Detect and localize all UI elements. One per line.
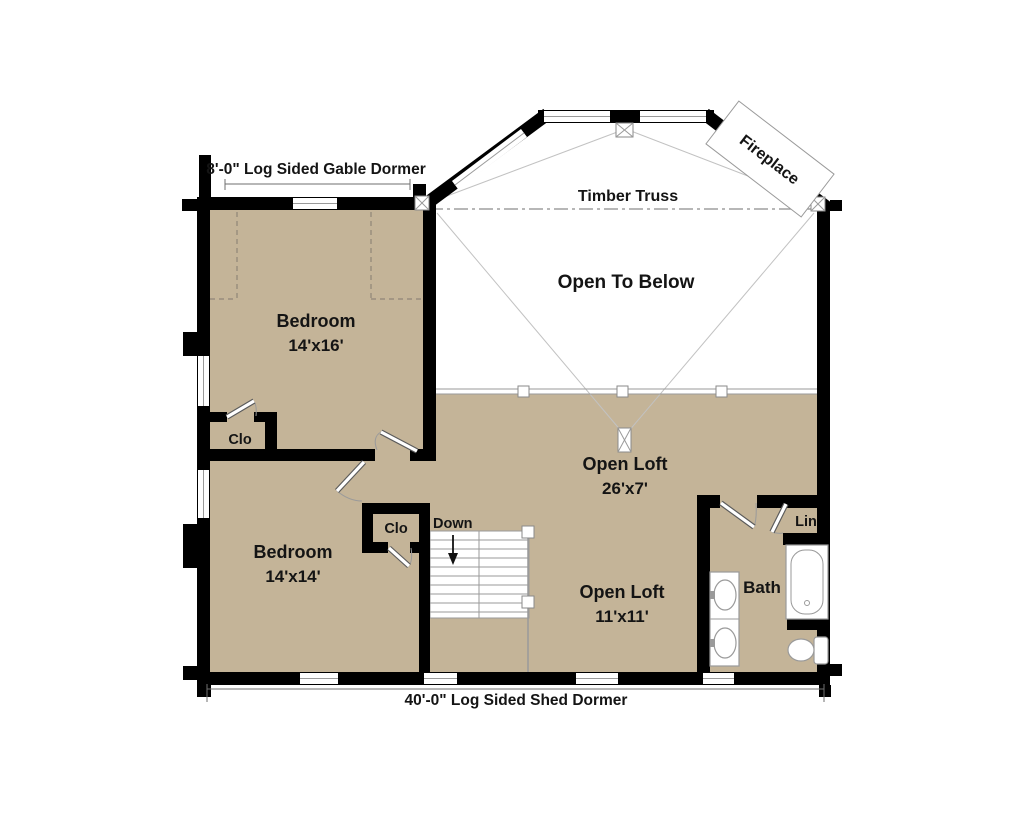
closet-lower-label: Clo [384,521,408,537]
toilet [788,637,828,664]
wall-ext-left [197,197,210,685]
loft-lower-size: 11'x11' [595,607,648,626]
loft-upper-size: 26'x7' [602,479,648,498]
bedroom-upper-name: Bedroom [276,311,355,331]
floor-plan-canvas: Fireplace 8'-0" Log Sided Gab [0,0,1024,819]
wall-stair-west [419,503,430,672]
stair-newel-bottom [522,596,534,608]
vanity-double-sink [710,572,739,666]
loft-upper-name: Open Loft [583,454,668,474]
prow-center-post [616,123,633,137]
loft-lower-name: Open Loft [580,582,665,602]
linen-label: Lin [795,514,817,530]
wall-bedroom-divider [197,449,375,461]
bedroom-lower-size: 14'x14' [265,567,320,586]
railing-post-3 [716,386,727,397]
wall-linen-south [783,533,830,545]
wall-bedroom-upper-right [423,203,436,461]
bedroom-lower-name: Bedroom [253,542,332,562]
truss-post-left [415,196,429,210]
railing-post-1 [518,386,529,397]
wall-bath-west [697,495,710,685]
wall-bath-north [697,495,720,508]
open-to-below-label: Open To Below [558,272,695,293]
stair-newel-top [522,526,534,538]
railing-post-2 [617,386,628,397]
wall-ext-bottom [197,672,830,685]
closet-upper-label: Clo [228,432,252,448]
bedroom-upper-size: 14'x16' [288,336,343,355]
wall-closet-upper [210,412,227,422]
gable-dormer-dimension-label: 8'-0" Log Sided Gable Dormer [206,161,425,178]
fireplace: Fireplace [706,101,834,217]
shed-dormer-dimension-label: 40'-0" Log Sided Shed Dormer [405,692,628,709]
wall-tub-south [787,618,830,630]
bath-label: Bath [743,578,781,597]
floor-plan-drawing: Fireplace 8'-0" Log Sided Gab [0,0,1024,819]
prow-window-left [455,133,524,185]
bathtub [786,545,828,619]
timber-truss-label: Timber Truss [578,188,678,205]
down-label: Down [433,516,472,532]
loft-post [618,428,631,452]
open-to-below-void [436,210,817,389]
